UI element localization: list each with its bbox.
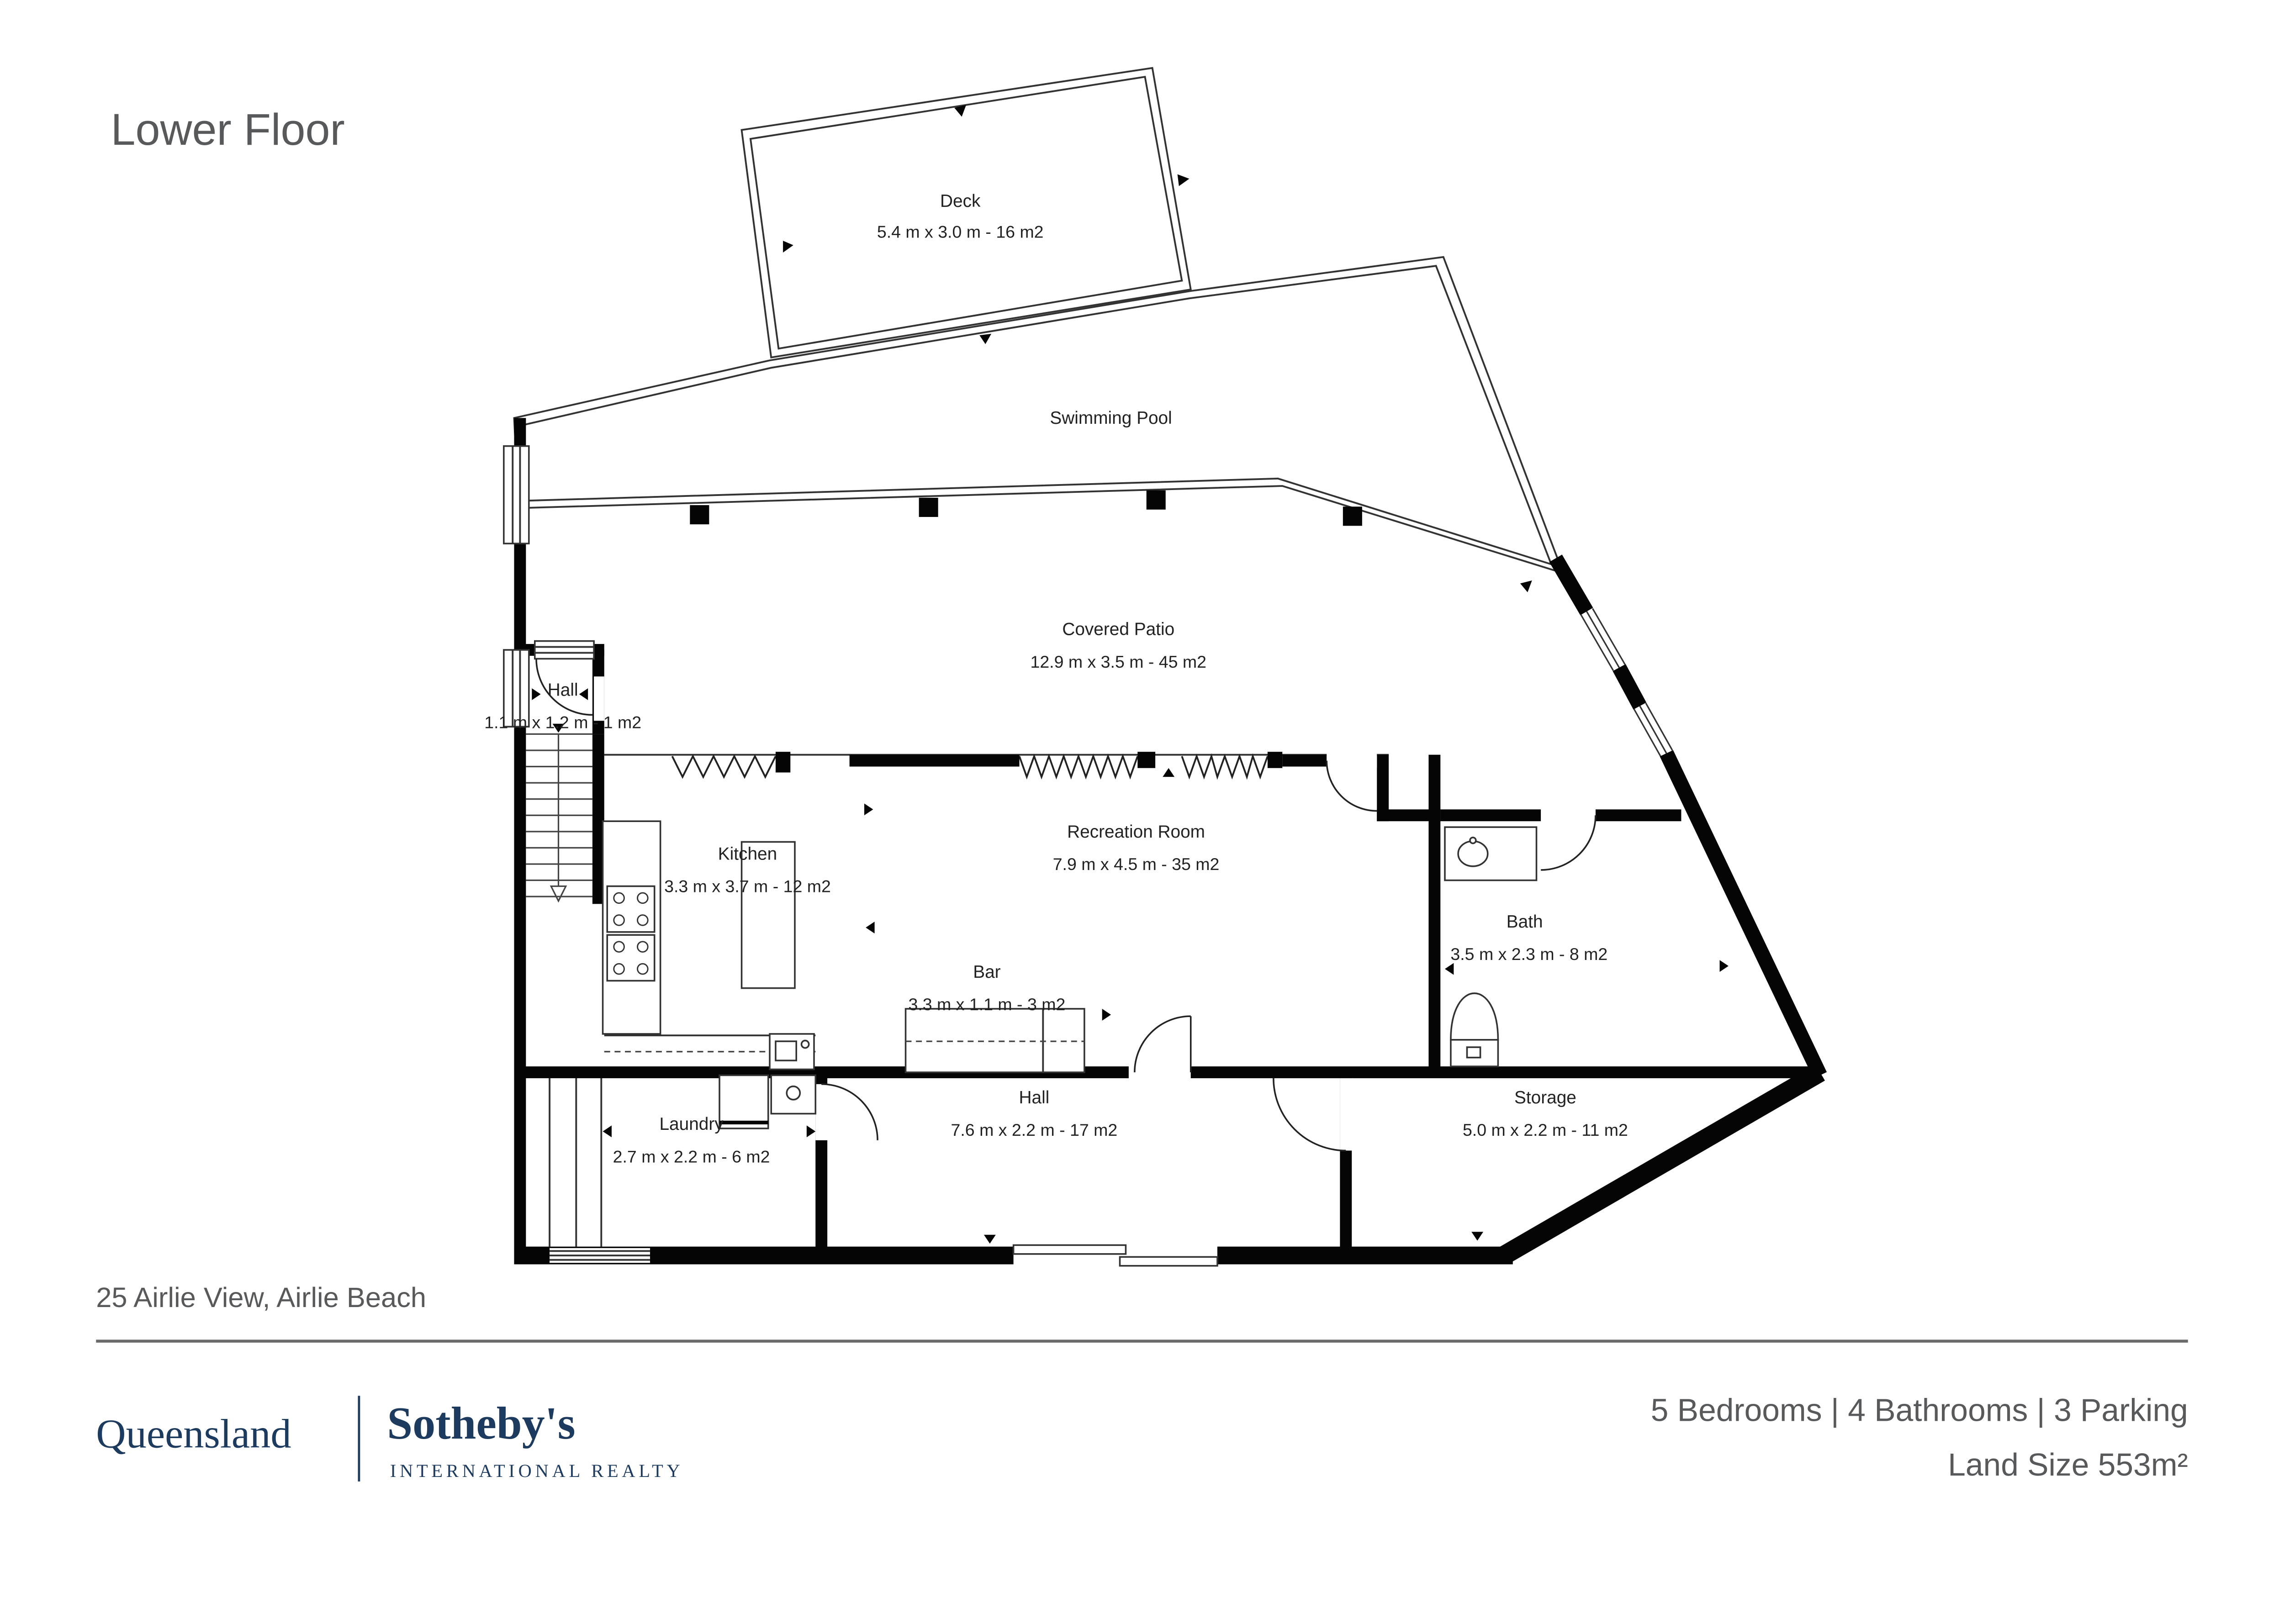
window-angled-upper (1581, 608, 1625, 670)
room-label-recreation: Recreation Room (1067, 822, 1205, 842)
window-hall-top (535, 641, 594, 659)
room-label-hall-lower: Hall (1019, 1088, 1049, 1107)
room-label-hall-upper: Hall (548, 680, 578, 700)
room-dims-recreation: 7.9 m x 4.5 m - 35 m2 (1053, 854, 1220, 874)
room-dims-laundry: 2.7 m x 2.2 m - 6 m2 (613, 1147, 770, 1166)
kitchen-island (742, 842, 795, 988)
window-angled-lower (1634, 703, 1672, 756)
room-dims-deck: 5.4 m x 3.0 m - 16 m2 (877, 222, 1044, 242)
room-dims-hall-lower: 7.6 m x 2.2 m - 17 m2 (951, 1120, 1118, 1139)
land-size: Land Size 553m² (1948, 1447, 2188, 1482)
stats-line: 5 Bedrooms | 4 Bathrooms | 3 Parking (1651, 1392, 2188, 1428)
window-left-upper (504, 446, 529, 543)
bath-door (1541, 815, 1596, 870)
room-dims-storage: 5.0 m x 2.2 m - 11 m2 (1463, 1120, 1628, 1139)
property-stats: 5 Bedrooms | 4 Bathrooms | 3 Parking Lan… (1651, 1392, 2188, 1482)
patio-columns (690, 490, 1362, 526)
room-dims-kitchen: 3.3 m x 3.7 m - 12 m2 (664, 876, 831, 896)
cooktop (603, 821, 661, 1034)
brand-name: Sotheby's (387, 1398, 575, 1449)
deck-outline (742, 68, 1191, 358)
address: 25 Airlie View, Airlie Beach (96, 1282, 426, 1313)
room-label-bath: Bath (1507, 912, 1543, 932)
bar-counter (906, 1009, 1084, 1072)
floorplan-page: Lower Floor (0, 0, 2284, 1523)
room-dims-bath: 3.5 m x 2.3 m - 8 m2 (1450, 944, 1607, 964)
room-label-kitchen: Kitchen (718, 844, 777, 864)
hall-lower-door (1135, 1016, 1191, 1072)
laundry-door (821, 1084, 878, 1140)
room-label-storage: Storage (1514, 1088, 1576, 1107)
storage-door (1274, 1078, 1346, 1150)
room-label-pool: Swimming Pool (1050, 408, 1172, 428)
room-label-patio: Covered Patio (1062, 620, 1174, 639)
brand-logo: Queensland Sotheby's INTERNATIONAL REALT… (96, 1396, 683, 1482)
toilet (1451, 993, 1498, 1066)
window-bottom-laundry (550, 1248, 650, 1263)
page-title: Lower Floor (111, 105, 345, 154)
washing-machine (719, 1075, 768, 1128)
room-label-laundry: Laundry (659, 1114, 724, 1134)
room-label-bar: Bar (973, 962, 1000, 982)
room-dims-patio: 12.9 m x 3.5 m - 45 m2 (1030, 652, 1206, 671)
laundry-sink (771, 1075, 815, 1113)
kitchen-sink (770, 1034, 814, 1070)
room-label-deck: Deck (940, 191, 981, 211)
recreation-door (1327, 761, 1377, 811)
stairs (526, 724, 592, 901)
bath-vanity (1445, 827, 1537, 880)
floorplan-canvas: Lower Floor (0, 0, 2284, 1523)
brand-sub: INTERNATIONAL REALTY (390, 1461, 684, 1481)
room-dims-bar: 3.3 m x 1.1 m - 3 m2 (908, 995, 1065, 1014)
room-dims-hall-upper: 1.1 m x 1.2 m - 1 m2 (484, 712, 641, 732)
brand-region: Queensland (96, 1410, 291, 1456)
